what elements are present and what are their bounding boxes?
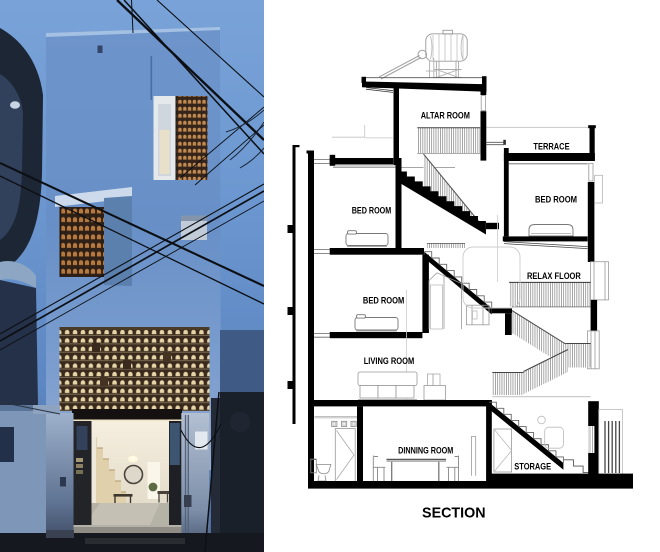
svg-text:LIVING ROOM: LIVING ROOM [364,356,415,366]
svg-text:BED ROOM: BED ROOM [363,295,405,305]
svg-text:RELAX FLOOR: RELAX FLOOR [527,271,581,281]
svg-text:ALTAR ROOM: ALTAR ROOM [421,111,470,121]
svg-text:DINNING ROOM: DINNING ROOM [398,446,453,456]
svg-text:SECTION: SECTION [422,505,486,522]
svg-text:BED ROOM: BED ROOM [535,195,577,205]
svg-text:BED ROOM: BED ROOM [352,205,392,215]
svg-text:STORAGE: STORAGE [514,461,551,471]
svg-text:TERRACE: TERRACE [533,141,569,151]
